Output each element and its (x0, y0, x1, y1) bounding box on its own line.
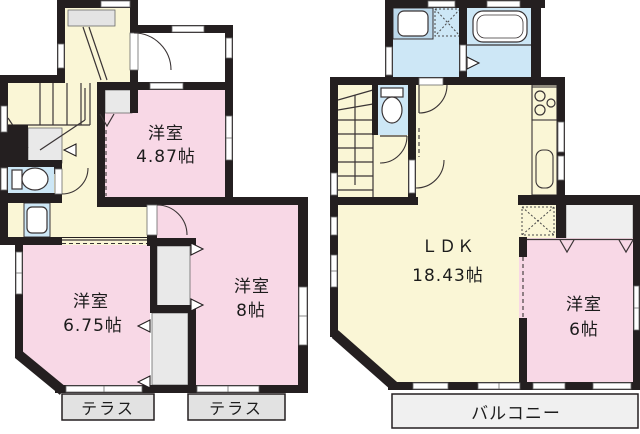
room6-opening (519, 257, 527, 318)
room3-label: 洋室 (234, 277, 270, 297)
toilet-room-2f (381, 88, 403, 123)
washbasin-icon (27, 207, 47, 233)
toilet-tank-icon (12, 170, 22, 189)
room6-closet (566, 203, 633, 239)
toilet-door-1f (55, 169, 62, 194)
toilet-icon (22, 168, 48, 190)
bathroom-door (460, 45, 466, 71)
room1-size: 4.87帖 (136, 147, 196, 167)
floor-plan-svg: テラス テラス 洋室 4.87帖 洋室 6.75帖 洋室 8帖 (0, 0, 640, 434)
terrace-left: テラス (62, 394, 154, 420)
floor2-plan: バルコニー ＬＤＫ 18.43帖 洋室 6帖 (330, 0, 640, 428)
toilet-room-1f (8, 166, 54, 193)
terrace-right: テラス (188, 394, 285, 420)
room3-size: 8帖 (236, 301, 266, 321)
room2-size: 6.75帖 (63, 316, 123, 336)
room1-closet (105, 90, 132, 113)
entrance-door (130, 33, 138, 70)
terrace-right-label: テラス (209, 399, 263, 418)
room6-label: 洋室 (566, 295, 602, 315)
terrace-left-label: テラス (81, 399, 135, 418)
wash-sink-icon (398, 11, 428, 36)
ldk-size: 18.43帖 (412, 266, 484, 286)
room2-closet (152, 313, 188, 385)
room1-label: 洋室 (148, 124, 184, 144)
toilet-2f-icon (382, 97, 402, 123)
room3-door (147, 205, 157, 235)
room2-label: 洋室 (73, 292, 109, 312)
understair-storage (28, 128, 62, 163)
shoe-cabinet-icon (68, 10, 115, 26)
room6-size: 6帖 (569, 320, 599, 340)
ldk-label: ＬＤＫ (421, 237, 475, 257)
ldk-door (409, 160, 415, 193)
floor-plan-image: テラス テラス 洋室 4.87帖 洋室 6.75帖 洋室 8帖 (0, 0, 640, 434)
washbasin-1f (24, 203, 50, 237)
floor1-plan: テラス テラス 洋室 4.87帖 洋室 6.75帖 洋室 8帖 (0, 0, 308, 420)
balcony: バルコニー (392, 394, 638, 428)
washroom-door (419, 78, 443, 85)
room2-sliding-door (62, 238, 147, 245)
bathroom-2f (467, 11, 531, 45)
balcony-label: バルコニー (471, 404, 561, 424)
toilet-tank-2f-icon (381, 88, 403, 97)
room3-closet (157, 246, 190, 306)
